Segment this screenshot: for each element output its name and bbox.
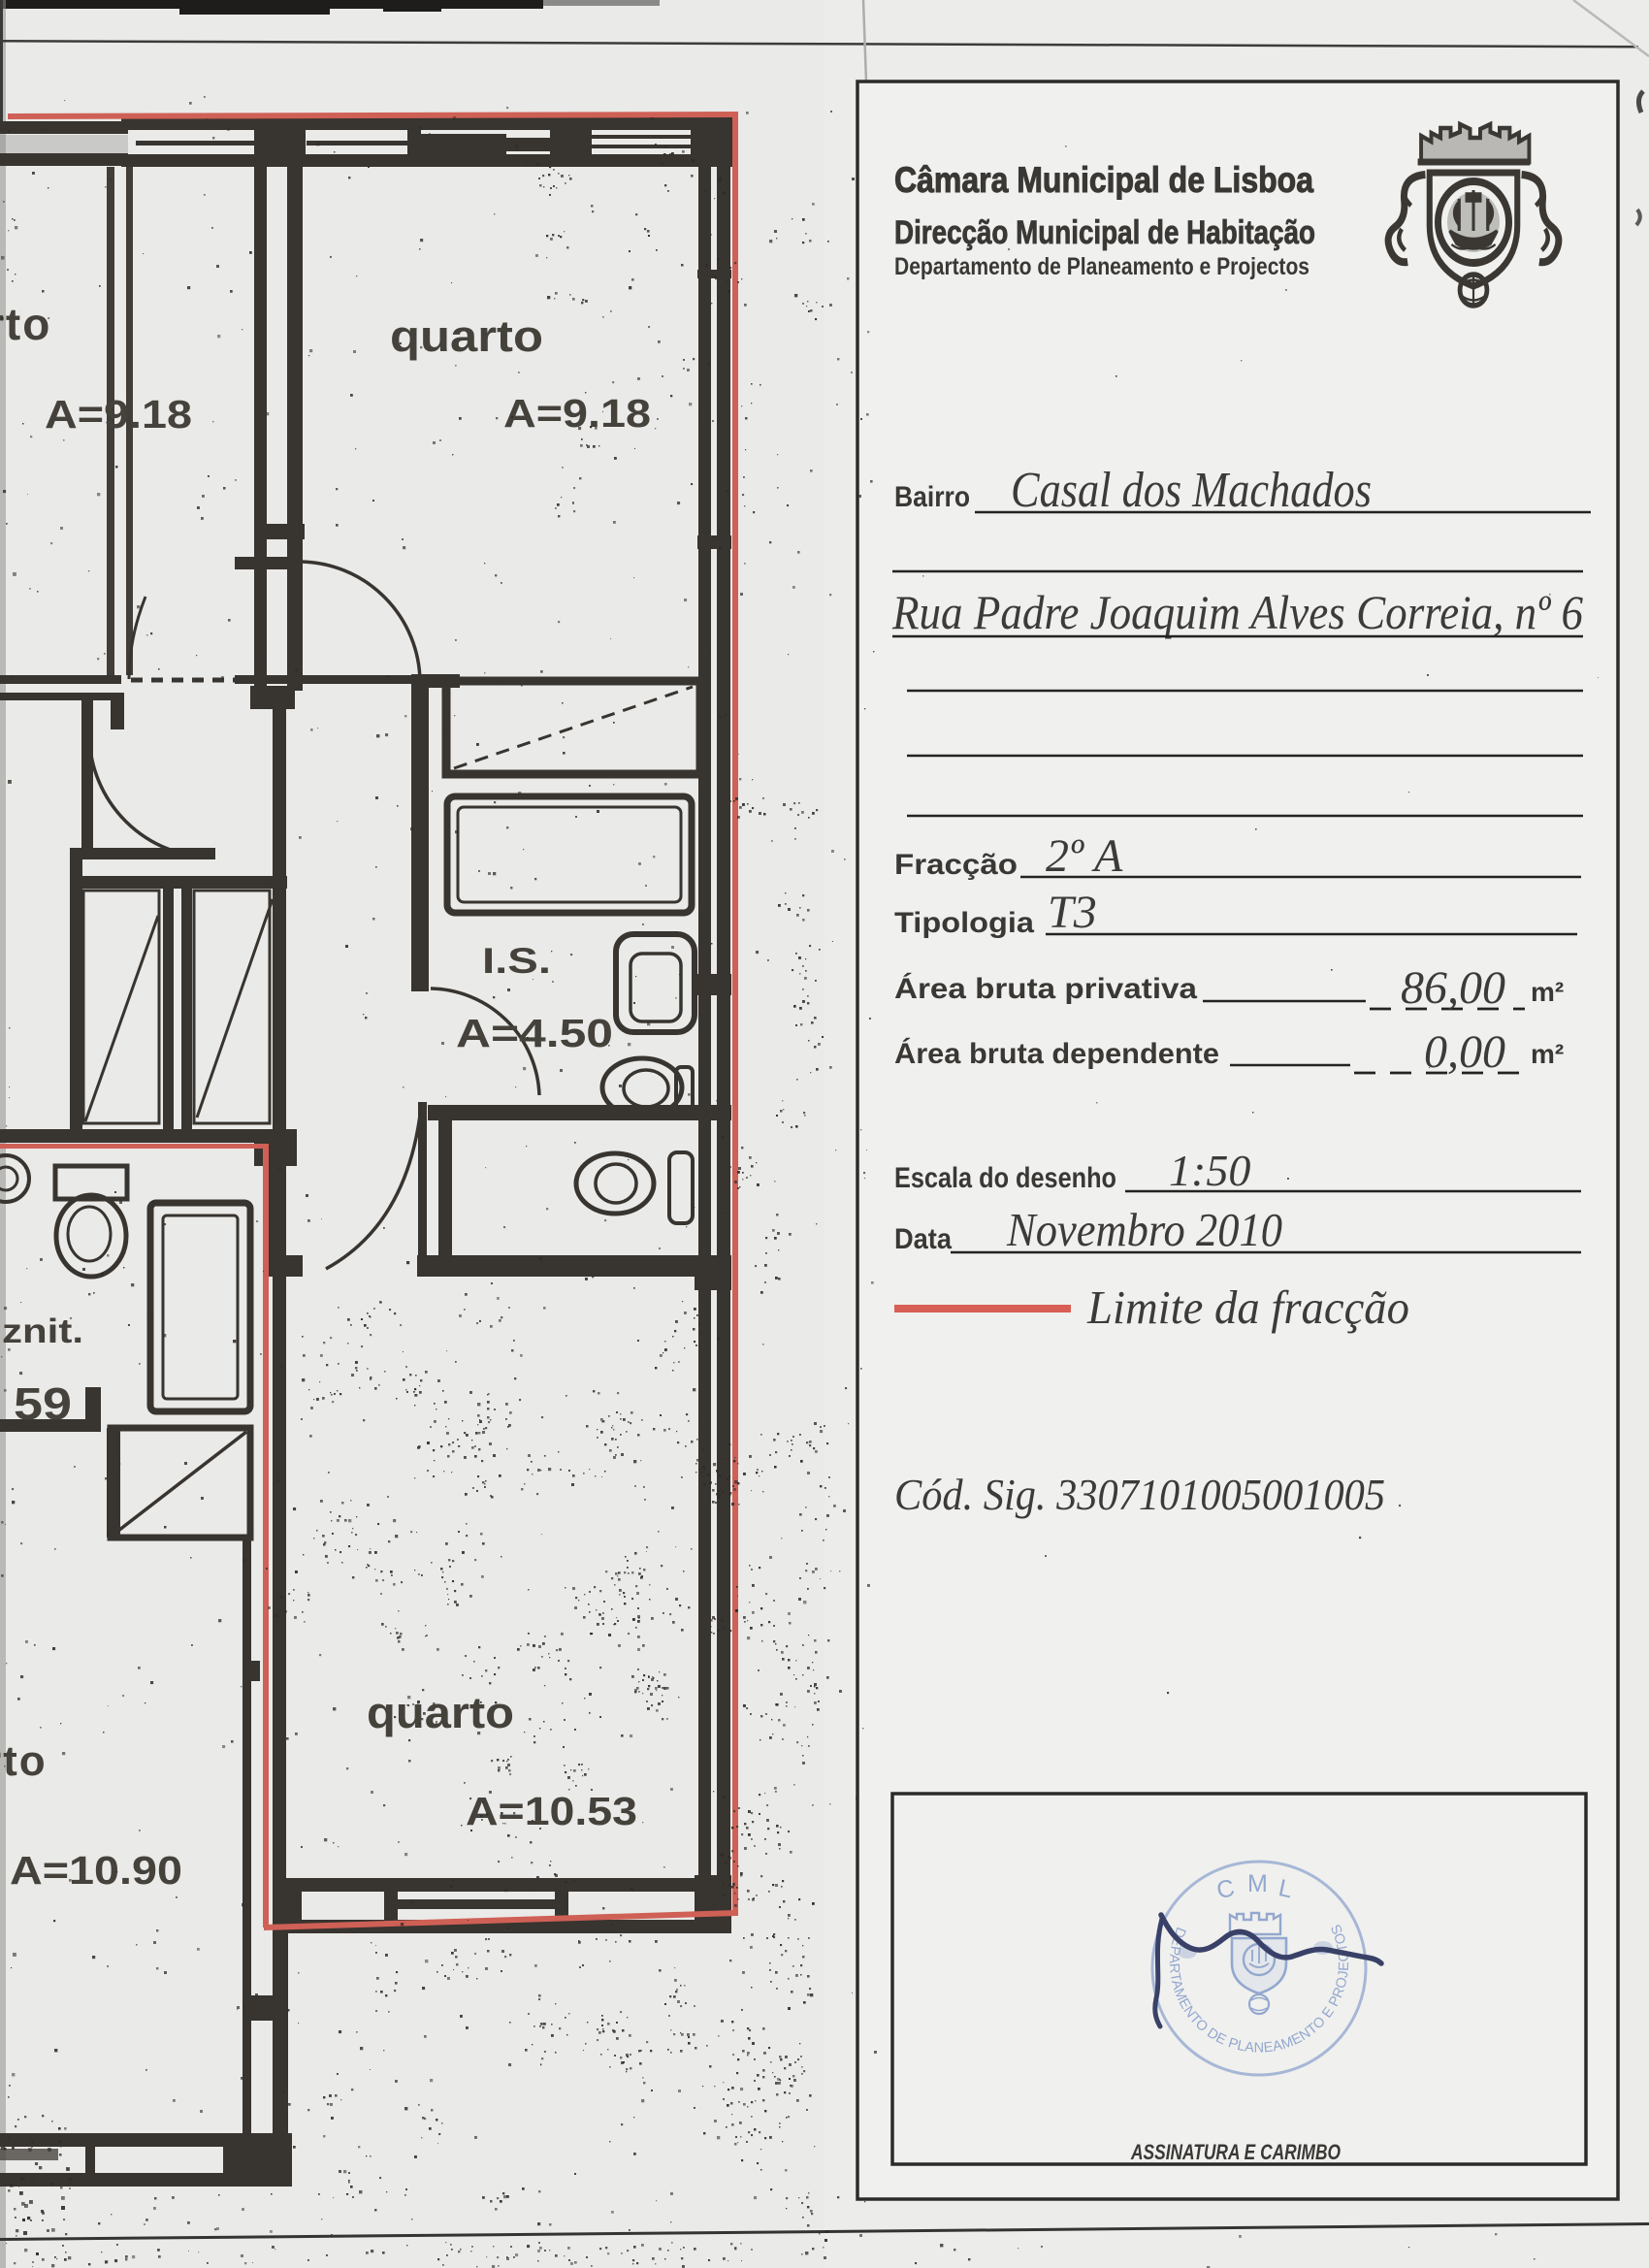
svg-text:A=10.90: A=10.90 — [10, 1848, 182, 1893]
svg-text:A=9.18: A=9.18 — [45, 392, 192, 437]
svg-text:Data: Data — [894, 1223, 952, 1255]
svg-text:86,00: 86,00 — [1401, 962, 1505, 1014]
svg-text:Casal dos Machados: Casal dos Machados — [1011, 463, 1372, 518]
svg-text:rto: rto — [0, 299, 51, 349]
svg-text:Direcção Municipal de Habitaçã: Direcção Municipal de Habitação — [894, 214, 1315, 251]
svg-text:Área bruta privativa: Área bruta privativa — [894, 972, 1197, 1005]
svg-text:Tipologia: Tipologia — [894, 907, 1034, 939]
svg-text:A=10.53: A=10.53 — [466, 1789, 637, 1833]
svg-text:Fracção: Fracção — [894, 849, 1018, 881]
svg-text:1:50: 1:50 — [1169, 1146, 1250, 1195]
svg-text:Bairro: Bairro — [894, 481, 970, 513]
svg-text:I.S.: I.S. — [482, 941, 551, 981]
svg-text:2º A: 2º A — [1046, 830, 1123, 882]
svg-text:Departamento de Planeamento e: Departamento de Planeamento e Projectos — [894, 253, 1309, 280]
svg-text:Novembro 2010: Novembro 2010 — [1006, 1203, 1282, 1256]
svg-text:quarto: quarto — [367, 1688, 514, 1737]
svg-text:Câmara Municipal de Lisboa: Câmara Municipal de Lisboa — [894, 160, 1313, 200]
svg-text:Rua Padre Joaquim Alves Correi: Rua Padre Joaquim Alves Correia, nº 6 — [891, 585, 1583, 639]
svg-text:0,00: 0,00 — [1424, 1026, 1505, 1078]
svg-text:rto: rto — [0, 1737, 48, 1785]
svg-text:T3: T3 — [1048, 887, 1097, 938]
svg-text:Limite da fracção: Limite da fracção — [1086, 1280, 1409, 1334]
svg-text:A=4.50: A=4.50 — [456, 1011, 613, 1055]
svg-text:M: M — [1247, 1870, 1268, 1897]
svg-text:Escala do desenho: Escala do desenho — [894, 1162, 1116, 1194]
svg-text:A=9.18: A=9.18 — [503, 391, 651, 436]
svg-text:ASSINATURA E CARIMBO: ASSINATURA E CARIMBO — [1130, 2140, 1341, 2164]
svg-text:Área bruta dependente: Área bruta dependente — [894, 1037, 1219, 1070]
svg-text:59: 59 — [14, 1378, 72, 1429]
svg-text:Cód. Sig. 3307101005001005: Cód. Sig. 3307101005001005 — [894, 1470, 1385, 1519]
svg-text:m²: m² — [1531, 1039, 1564, 1069]
svg-text:quarto: quarto — [390, 311, 543, 361]
svg-text:m²: m² — [1531, 977, 1564, 1007]
